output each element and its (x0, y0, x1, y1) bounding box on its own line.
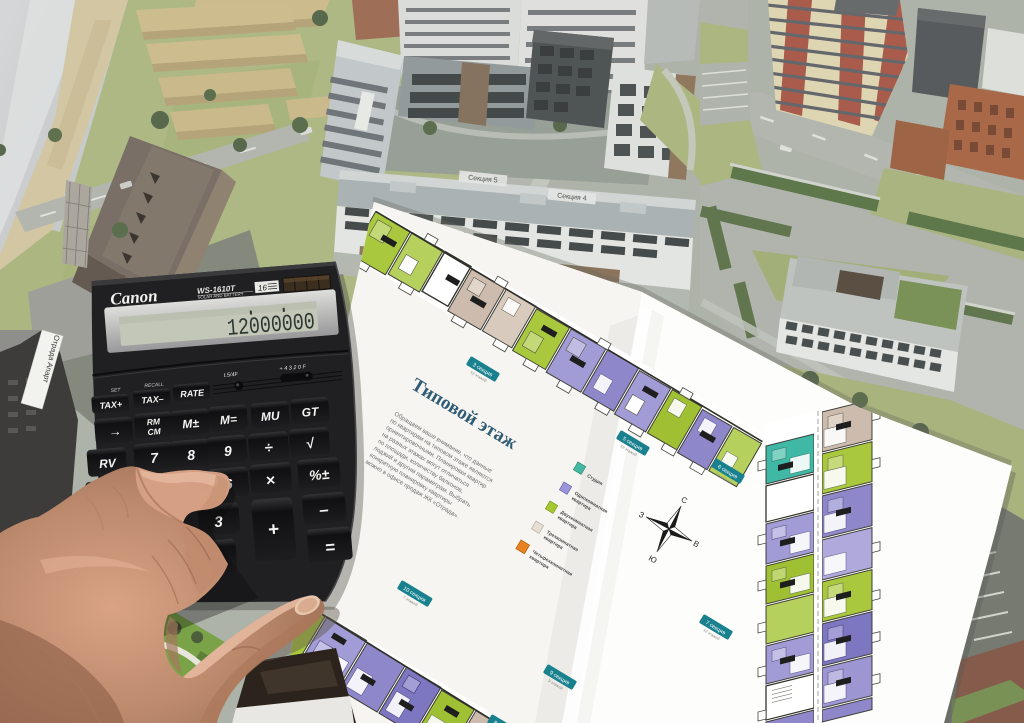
svg-text:→: → (108, 423, 122, 439)
svg-text:16: 16 (258, 283, 268, 293)
svg-text:t.5/4F: t.5/4F (224, 372, 239, 379)
svg-text:+: + (267, 519, 280, 541)
svg-text:TAX–: TAX– (141, 394, 164, 406)
svg-text:%±: %± (308, 466, 330, 484)
svg-text:×: × (265, 472, 276, 490)
svg-text:RV: RV (99, 456, 118, 471)
svg-text:SET: SET (110, 387, 121, 394)
svg-text:9: 9 (223, 442, 232, 459)
svg-text:=: = (324, 538, 335, 558)
svg-text:MU: MU (260, 409, 280, 424)
svg-text:M±: M± (182, 416, 200, 431)
svg-text:GT: GT (301, 404, 320, 419)
svg-text:CM: CM (147, 426, 162, 437)
svg-text:RATE: RATE (180, 387, 206, 399)
svg-text:8: 8 (187, 446, 196, 463)
svg-text:M=: M= (219, 412, 237, 427)
svg-text:TAX+: TAX+ (99, 399, 123, 411)
